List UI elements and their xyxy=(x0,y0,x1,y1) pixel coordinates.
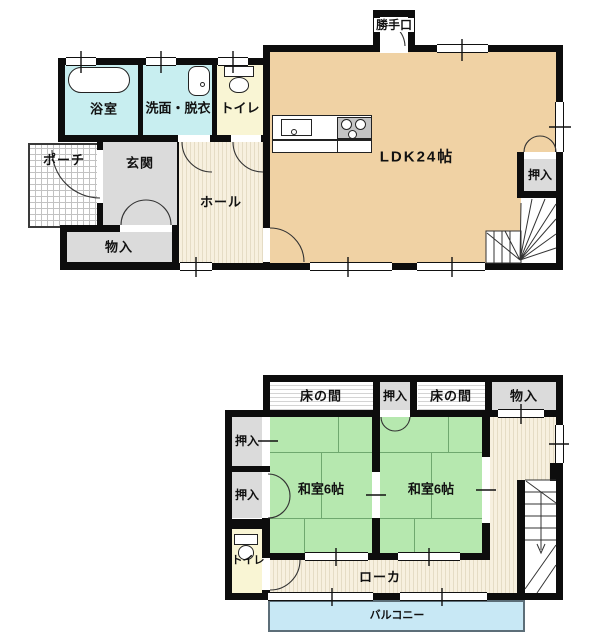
window xyxy=(305,552,368,561)
wall xyxy=(372,518,380,553)
window xyxy=(498,409,544,418)
label-washitsu-right: 和室6帖 xyxy=(408,483,454,496)
stairs-2f xyxy=(525,480,556,593)
toilet-2f-tank xyxy=(234,534,258,545)
door-opening xyxy=(524,152,556,159)
wall xyxy=(556,375,563,600)
door-opening xyxy=(178,135,210,142)
tatami-line xyxy=(414,518,415,553)
window xyxy=(400,592,487,601)
tatami-line xyxy=(304,518,305,553)
stairs-1f-lower xyxy=(486,231,521,263)
label-closet-upper-2f: 押入 xyxy=(235,435,259,447)
label-bath: 浴室 xyxy=(90,103,118,116)
door-opening xyxy=(380,410,410,417)
window xyxy=(555,425,564,463)
window xyxy=(437,44,488,53)
label-corridor: ローカ xyxy=(359,571,401,584)
kitchen-sink-drain xyxy=(291,129,297,135)
label-backdoor: 勝手口 xyxy=(374,18,414,32)
window xyxy=(555,102,564,152)
wall xyxy=(58,58,65,142)
window xyxy=(218,57,248,66)
door-opening xyxy=(97,150,103,203)
wall xyxy=(368,553,398,560)
window xyxy=(417,262,485,271)
wall xyxy=(60,262,179,270)
window xyxy=(146,57,176,66)
wall xyxy=(138,65,143,135)
stove-burner-1 xyxy=(341,119,352,130)
toilet-1f-bowl xyxy=(229,77,249,93)
tatami-line xyxy=(380,518,482,519)
door-opening xyxy=(482,457,490,523)
tatami-line xyxy=(338,417,339,452)
wall xyxy=(373,10,415,17)
window xyxy=(180,262,212,271)
wall xyxy=(517,191,563,198)
label-balcony: バルコニー xyxy=(370,611,425,622)
door-opening xyxy=(231,135,261,142)
door-opening xyxy=(262,417,270,466)
label-entrance: 玄関 xyxy=(126,157,154,170)
label-closet-1f: 押入 xyxy=(528,169,552,181)
window xyxy=(66,57,96,66)
wall xyxy=(550,463,563,481)
label-storage-2f: 物入 xyxy=(510,390,538,403)
room-entrance xyxy=(103,142,177,225)
window xyxy=(268,592,373,601)
label-washroom: 洗面・脱衣 xyxy=(145,102,210,115)
label-tokonoma-left: 床の間 xyxy=(300,390,342,403)
door-opening xyxy=(372,472,380,518)
label-toilet-2f: トイレ xyxy=(232,556,265,567)
label-hall: ホール xyxy=(200,196,242,209)
door-opening xyxy=(262,472,270,518)
window xyxy=(398,552,460,561)
wall xyxy=(482,523,490,553)
wall xyxy=(225,410,232,600)
door-opening xyxy=(263,228,270,262)
label-closet-center-2f: 押入 xyxy=(383,390,407,402)
wall xyxy=(517,480,525,593)
label-porch: ポーチ xyxy=(43,154,85,167)
kitchen-counter-lower-right xyxy=(337,140,372,153)
wall xyxy=(482,417,490,457)
label-closet-lower-2f: 押入 xyxy=(235,489,259,501)
stove-burner-3 xyxy=(348,130,357,139)
wall xyxy=(263,410,492,417)
wall xyxy=(262,518,270,529)
tatami-line xyxy=(270,518,372,519)
washbasin-drain xyxy=(200,82,205,87)
door-opening xyxy=(380,45,408,53)
wall xyxy=(372,417,380,472)
wall xyxy=(177,142,179,226)
door-opening xyxy=(120,225,172,232)
floorplan-canvas: 勝手口 浴室 洗面・脱衣 トイレ ポーチ 玄関 ホール 物入 LDK24帖 押入… xyxy=(0,0,609,640)
wall xyxy=(460,553,490,560)
washbasin xyxy=(188,66,210,96)
wall xyxy=(212,65,217,135)
label-washitsu-left: 和室6帖 xyxy=(298,483,344,496)
window xyxy=(310,262,392,271)
toilet-1f-tank xyxy=(224,66,254,77)
label-tokonoma-right: 床の間 xyxy=(430,390,472,403)
label-ldk: LDK24帖 xyxy=(380,150,455,165)
label-toilet-1f: トイレ xyxy=(220,102,259,115)
stove-burner-2 xyxy=(355,119,366,130)
kitchen-counter-lower-left xyxy=(272,140,338,153)
wall xyxy=(172,225,179,270)
label-storage-1f: 物入 xyxy=(105,241,133,254)
stairs-1f-upper xyxy=(521,198,556,263)
wall xyxy=(268,553,306,560)
bathtub xyxy=(68,67,130,93)
tatami-line xyxy=(448,417,449,452)
wall xyxy=(263,263,563,270)
